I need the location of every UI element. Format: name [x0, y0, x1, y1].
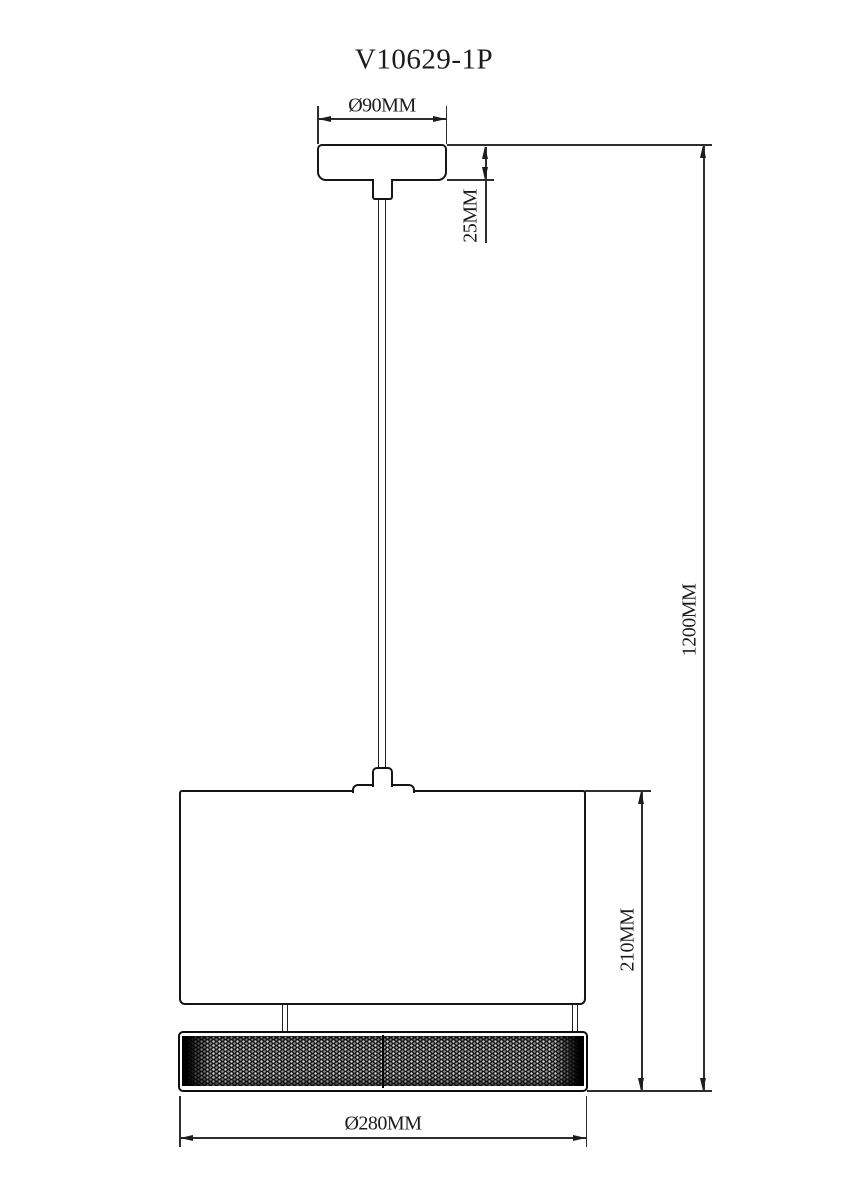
mesh-diffuser-band — [178, 1031, 588, 1092]
lamp-shade-body — [179, 790, 586, 1005]
dim280-arrow-right-icon — [573, 1135, 586, 1141]
shade-height-label: 210MM — [617, 908, 640, 971]
ceiling-canopy — [317, 144, 447, 181]
dim-line-canopy-height — [485, 147, 487, 243]
dim90-arrow-left-icon — [318, 116, 331, 122]
ext-line-bottom-right — [587, 1090, 712, 1092]
dim90-arrow-right-icon — [433, 116, 446, 122]
support-rod-right — [572, 1005, 578, 1032]
dim1200-arrow-up-icon — [700, 145, 706, 158]
dim-line-shade-height — [641, 792, 643, 1091]
canopy-diameter-label: Ø90MM — [348, 95, 416, 118]
dim1200-arrow-down-icon — [700, 1078, 706, 1091]
ext-line-canopy-right — [446, 106, 448, 144]
ext-line-canopy-left — [317, 106, 319, 144]
cable-connector — [372, 179, 393, 200]
dim-line-canopy-diameter — [318, 118, 446, 120]
dim25-arrow-up-icon — [482, 146, 488, 159]
dim25-arrow-down-icon — [482, 167, 488, 180]
cord-grip — [372, 767, 393, 787]
canopy-height-label: 25MM — [460, 189, 483, 243]
dim210-arrow-up-icon — [638, 791, 644, 804]
support-rod-left — [282, 1005, 288, 1032]
dim280-arrow-left-icon — [180, 1135, 193, 1141]
dim-line-shade-diameter — [180, 1137, 586, 1139]
drawing-title: V10629-1P — [355, 44, 493, 77]
suspension-cable — [378, 200, 386, 768]
mesh-seam-line — [382, 1035, 384, 1088]
dim-line-overall-height — [703, 146, 705, 1091]
technical-drawing: V10629-1P Ø90MM 25MM 210MM 1200MM — [0, 0, 848, 1200]
shade-diameter-label: Ø280MM — [344, 1113, 421, 1136]
overall-height-label: 1200MM — [679, 584, 702, 657]
